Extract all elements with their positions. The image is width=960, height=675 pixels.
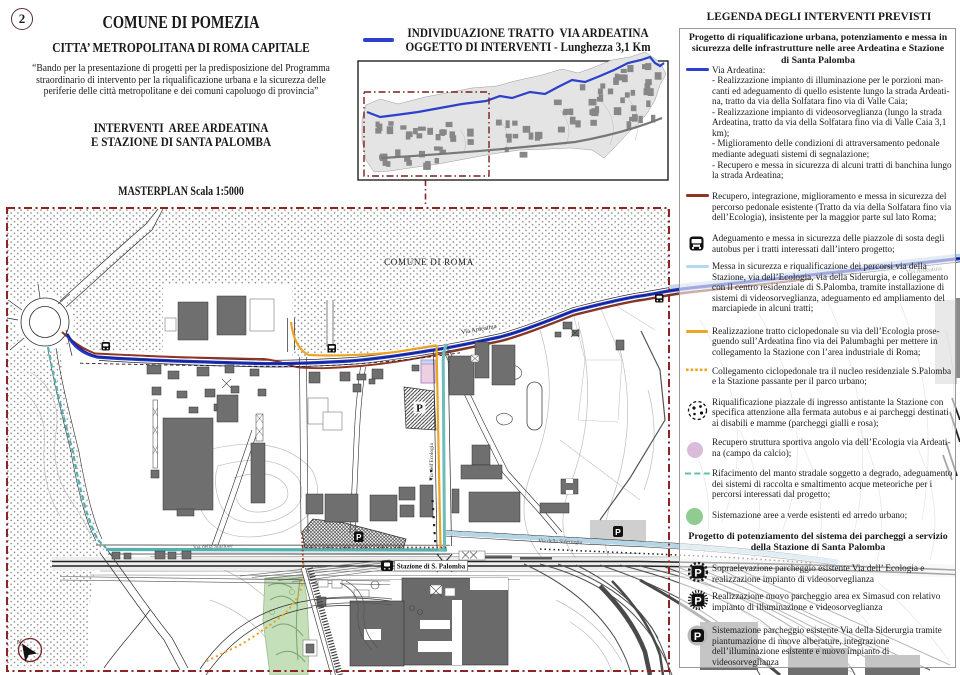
svg-text:Via dell'Ecologia: Via dell'Ecologia <box>429 443 435 481</box>
svg-text:N: N <box>17 640 22 646</box>
svg-text:P: P <box>416 403 423 415</box>
svg-text:COMUNE DI ROMA: COMUNE DI ROMA <box>384 257 474 267</box>
svg-text:P: P <box>694 631 701 643</box>
svg-text:P: P <box>615 527 621 537</box>
svg-text:Via della Siderurgia: Via della Siderurgia <box>538 538 583 546</box>
svg-text:P: P <box>356 533 362 542</box>
svg-text:Stazione di S. Palomba: Stazione di S. Palomba <box>397 563 466 571</box>
svg-text:P: P <box>694 596 701 608</box>
svg-text:P: P <box>694 568 701 580</box>
